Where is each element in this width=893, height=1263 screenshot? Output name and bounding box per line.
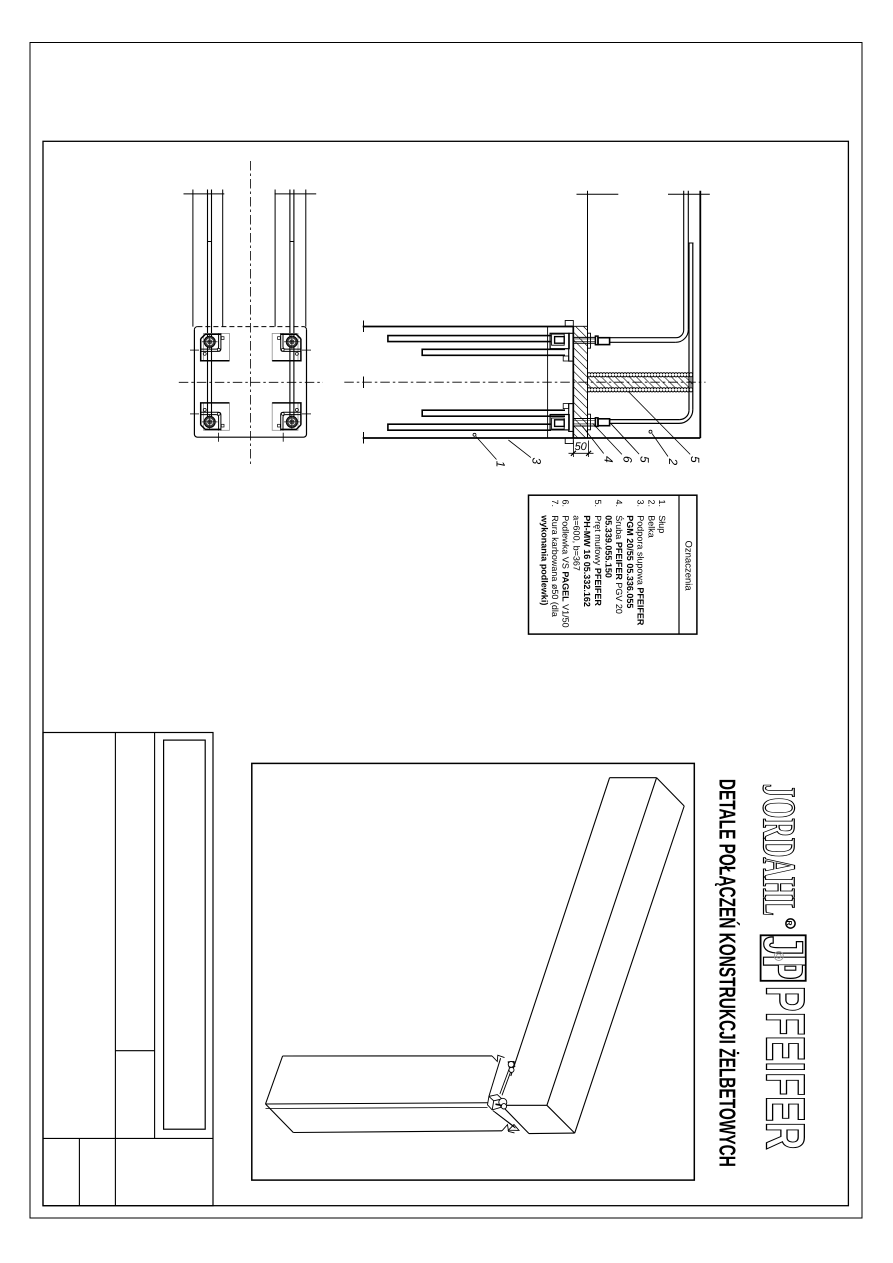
svg-text:Podpora słupowa PFEIFER: Podpora słupowa PFEIFER — [636, 515, 646, 626]
svg-text:R: R — [785, 921, 792, 926]
svg-text:Rura karbowana ø50 (dla: Rura karbowana ø50 (dla — [550, 515, 560, 617]
svg-text:Śruba PFEIFER PGV 20: Śruba PFEIFER PGV 20 — [614, 515, 625, 614]
svg-text:Pręt mufowy PFEIFER: Pręt mufowy PFEIFER — [593, 515, 603, 606]
svg-text:3.: 3. — [636, 500, 646, 508]
svg-text:6: 6 — [620, 456, 634, 463]
svg-text:wykonania podlewki): wykonania podlewki) — [539, 514, 549, 605]
svg-text:PGM 20/55 05.336.055: PGM 20/55 05.336.055 — [625, 515, 635, 608]
svg-text:5.: 5. — [593, 500, 603, 508]
svg-text:4.: 4. — [614, 500, 624, 508]
svg-text:a=600, b=367: a=600, b=367 — [571, 515, 581, 571]
svg-text:Słup: Słup — [657, 515, 667, 533]
svg-text:2.: 2. — [646, 500, 656, 508]
svg-text:50: 50 — [575, 441, 588, 453]
svg-text:05.339.055.150: 05.339.055.150 — [604, 515, 614, 578]
svg-text:Podlewka VS PAGEL V1/50: Podlewka VS PAGEL V1/50 — [561, 515, 571, 627]
svg-text:6.: 6. — [561, 500, 571, 508]
svg-text:Oznaczenia: Oznaczenia — [683, 541, 694, 592]
svg-text:PH-MW 16 05.332.162: PH-MW 16 05.332.162 — [582, 515, 592, 607]
svg-text:7.: 7. — [550, 500, 560, 508]
svg-text:5: 5 — [638, 456, 652, 463]
svg-text:4: 4 — [602, 456, 616, 463]
svg-text:Belka: Belka — [646, 515, 656, 538]
svg-text:1.: 1. — [657, 500, 667, 508]
svg-text:3: 3 — [530, 458, 544, 465]
svg-text:5: 5 — [688, 456, 702, 463]
svg-text:PFEIFER: PFEIFER — [755, 986, 817, 1150]
svg-text:1: 1 — [493, 461, 507, 468]
svg-text:DETALE POŁĄCZEŃ KONSTRUKCJI ŻE: DETALE POŁĄCZEŃ KONSTRUKCJI ŻELBETOWYCH — [714, 779, 740, 1167]
svg-text:JORDAHL: JORDAHL — [753, 784, 805, 916]
svg-text:2: 2 — [666, 458, 680, 466]
